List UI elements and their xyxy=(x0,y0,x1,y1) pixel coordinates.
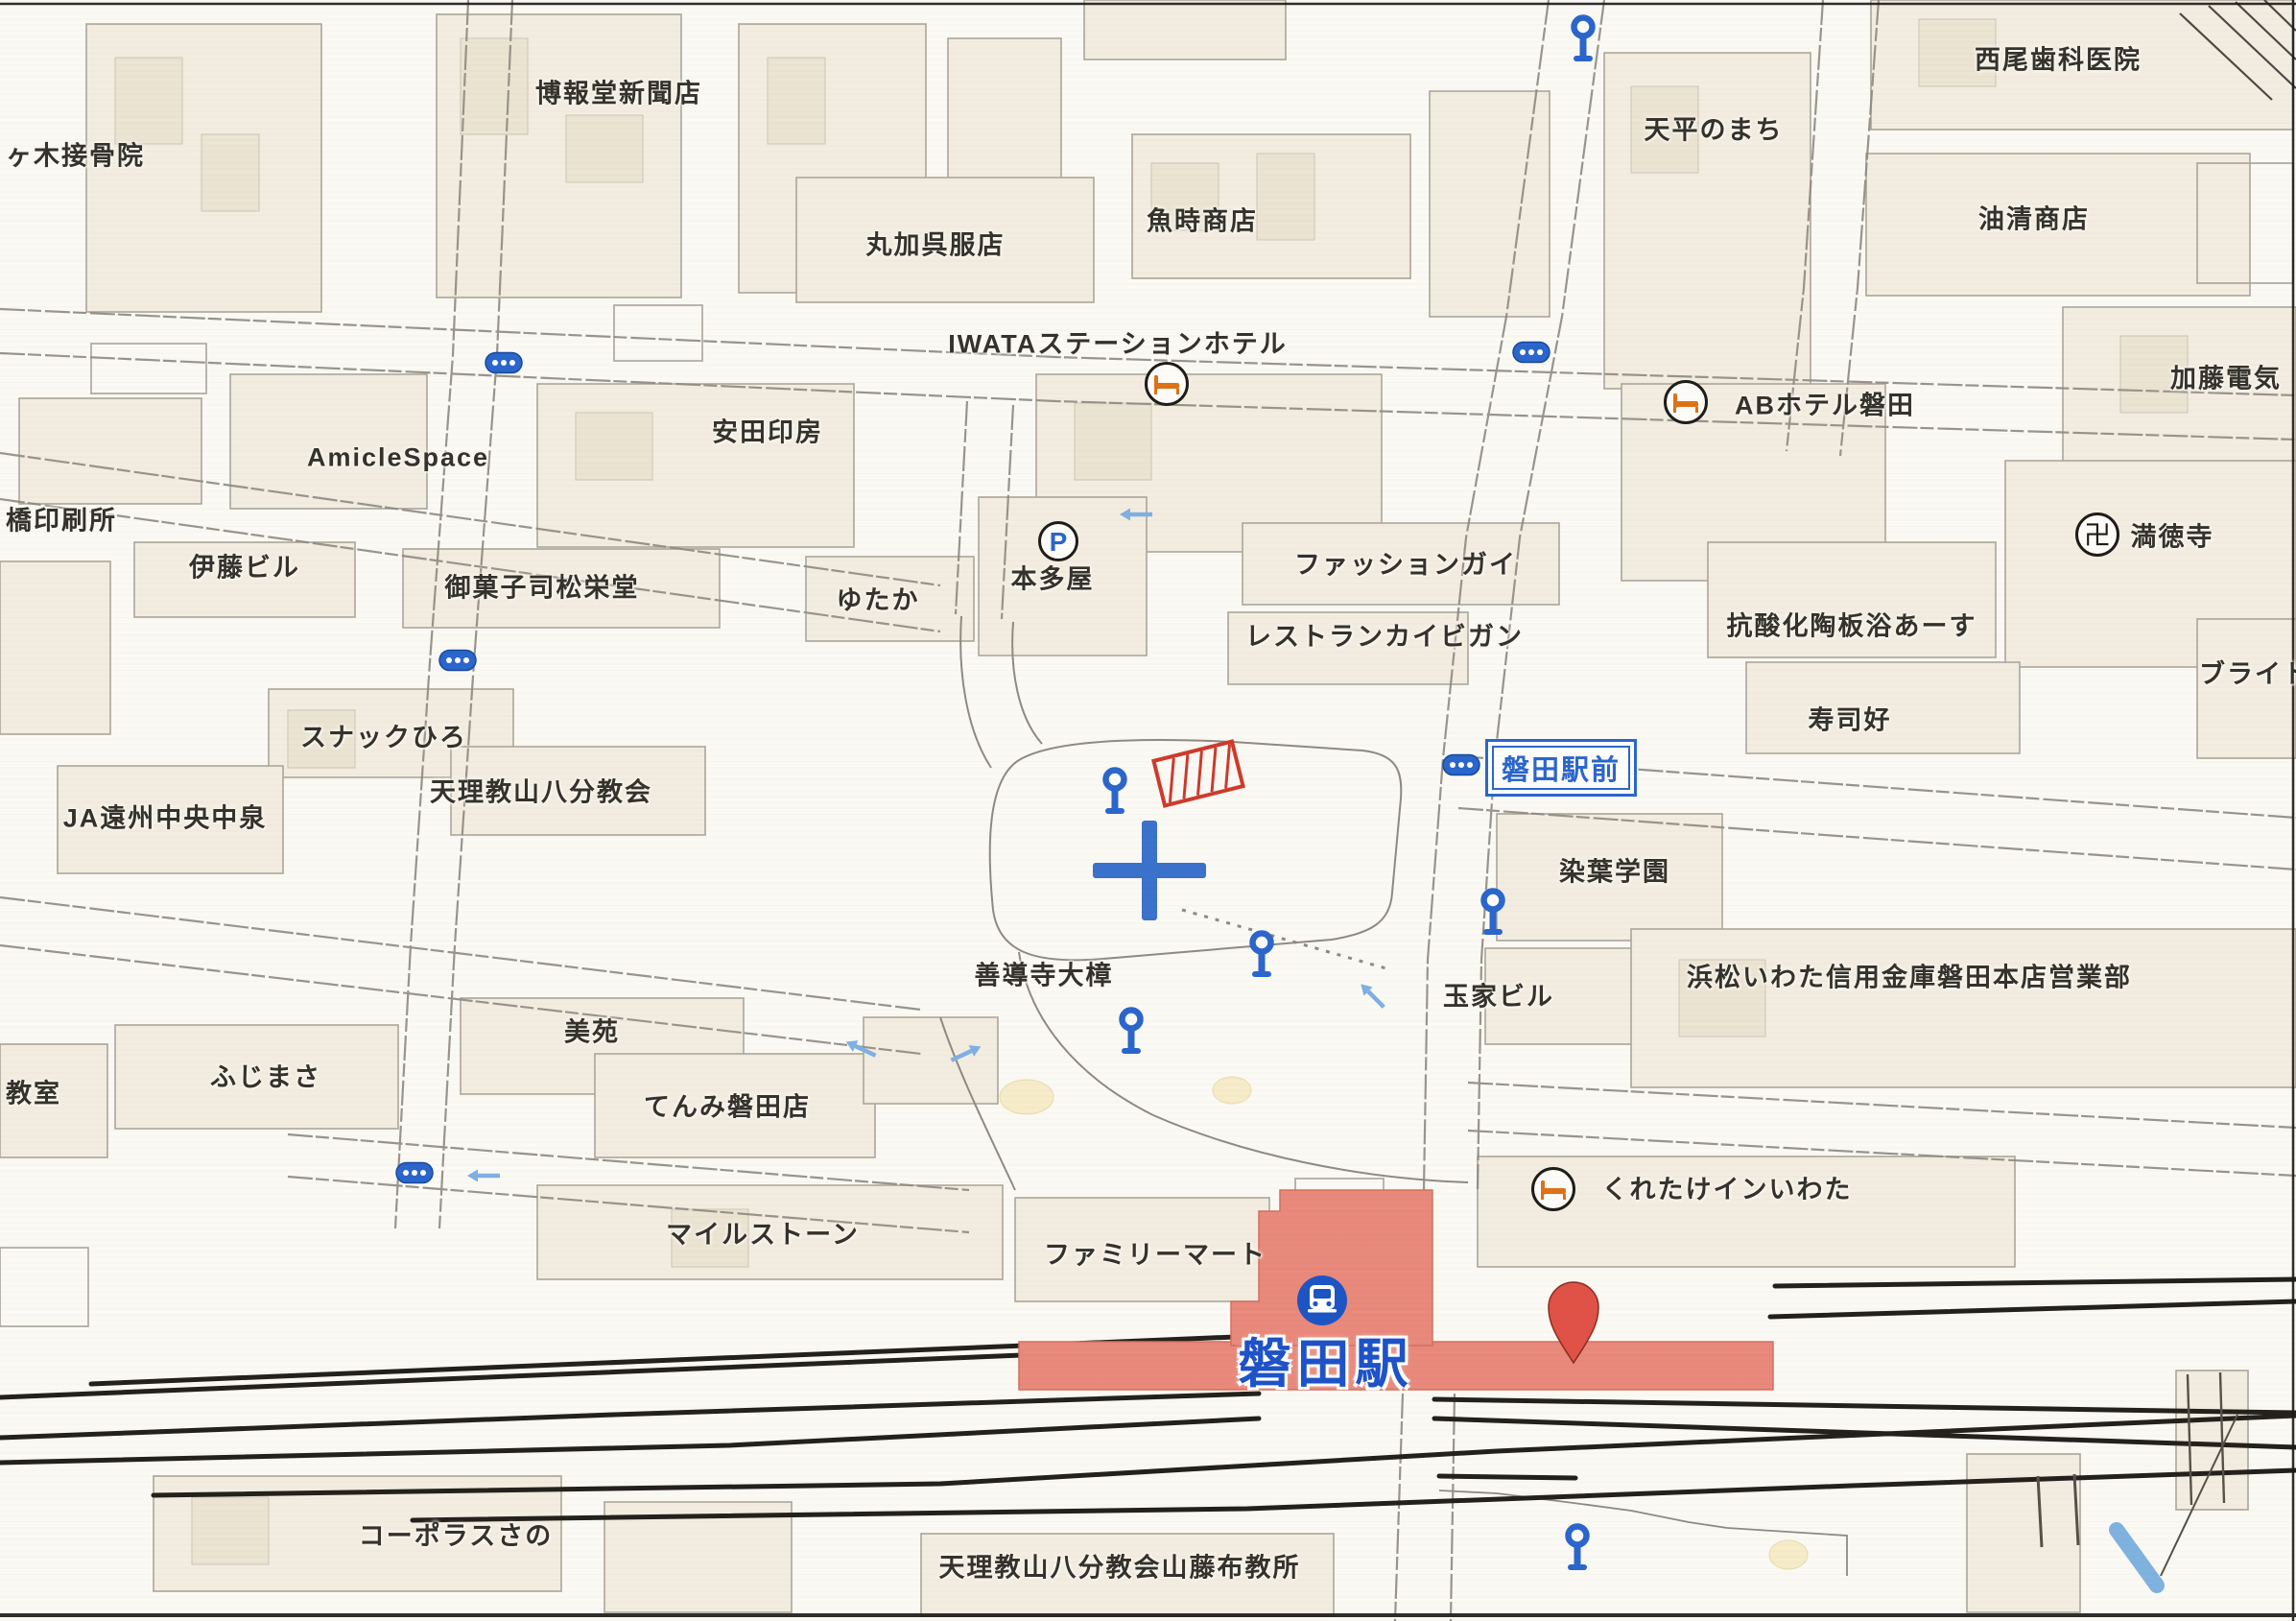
map-label-ito-building: 伊藤ビル xyxy=(189,547,300,584)
label-layer: 磐田駅前 磐田駅 ヶ木接骨院博報堂新聞店丸加呉服店魚時商店天平のまち西尾歯科医院… xyxy=(0,0,2296,1621)
map-label-someha-gakuen: 染葉学園 xyxy=(1559,851,1670,889)
map-label-ja-enshu-chuo-nakaizumi: JA遠州中央中泉 xyxy=(63,798,268,835)
map-label-family-mart: ファミリーマート xyxy=(1044,1234,1266,1272)
map-label-bien: 美苑 xyxy=(564,1012,620,1049)
map-label-bright: ブライト xyxy=(2199,654,2296,691)
map-label-milestone: マイルストーン xyxy=(666,1214,860,1252)
map-label-uotoki-shoten: 魚時商店 xyxy=(1147,201,1258,238)
map-label-sasaki-seikotsuin: ヶ木接骨院 xyxy=(6,135,145,173)
map-label-restaurant-kaibigan: レストランカイビガン xyxy=(1245,616,1524,654)
map-label-kyoshitsu: 教室 xyxy=(6,1073,61,1110)
map-label-tenpyo-no-machi: 天平のまち xyxy=(1645,109,1784,147)
map-label-tenrikyo-yamafuji-fukyosho: 天理教山八分教会山藤布教所 xyxy=(939,1547,1301,1585)
station-name-label: 磐田駅 xyxy=(1238,1321,1413,1397)
map-label-ab-hotel-iwata: ABホテル磐田 xyxy=(1735,385,1915,422)
map-label-coporas-sano: コーポラスさの xyxy=(359,1515,553,1553)
bus-stop-name-label: 磐田駅前 xyxy=(1485,739,1637,797)
map-label-hakuhodo-shinbunten: 博報堂新聞店 xyxy=(535,73,702,110)
map-label-amicle-space: AmicleSpace xyxy=(307,443,489,473)
map-label-yutaka: ゆたか xyxy=(837,580,920,617)
map-label-kosanka-tobanyoku-earth: 抗酸化陶板浴あーす xyxy=(1727,606,1977,643)
map-label-sushiko: 寿司好 xyxy=(1809,700,1892,737)
map-label-fashion-gai: ファッションガイ xyxy=(1294,544,1517,582)
map-label-tenrikyo-yamahachi-bunkyokai: 天理教山八分教会 xyxy=(430,772,652,809)
map-label-yusei-shoten: 油清商店 xyxy=(1978,199,2090,236)
map-label-tenmi-iwataten: てんみ磐田店 xyxy=(644,1086,811,1124)
map-label-iwata-station-hotel: IWATAステーションホテル xyxy=(948,323,1287,361)
map-label-snack-hiro: スナックひろ xyxy=(300,717,467,754)
map-label-nishio-shika-iin: 西尾歯科医院 xyxy=(1975,39,2142,77)
map-label-yasuda-inbo: 安田印房 xyxy=(712,412,823,449)
map-label-tamaya-building: 玉家ビル xyxy=(1443,976,1554,1013)
map-label-maruka-gofukuten: 丸加呉服店 xyxy=(866,225,1006,262)
map-label-kato-denki: 加藤電気 xyxy=(2170,358,2282,395)
map-label-zendoji-okusu: 善導寺大樟 xyxy=(975,955,1114,992)
map-label-fujimasa: ふじまさ xyxy=(210,1057,321,1094)
map-root: P卍 磐田駅前 磐田駅 ヶ木接骨院博報堂新聞店丸加呉服店魚時商店天平のまち西尾歯… xyxy=(0,0,2296,1621)
map-label-hashi-insatsusho: 橋印刷所 xyxy=(6,500,117,537)
map-label-mantokuji: 満徳寺 xyxy=(2131,516,2214,554)
map-label-kuretake-inn-iwata: くれたけインいわた xyxy=(1602,1169,1853,1206)
map-label-hamamatsu-iwata-shinkin-honten: 浜松いわた信用金庫磐田本店営業部 xyxy=(1687,957,2132,994)
map-label-okashitsukasa-shoeido: 御菓子司松栄堂 xyxy=(445,567,640,605)
map-label-hondaya: 本多屋 xyxy=(1011,559,1095,596)
